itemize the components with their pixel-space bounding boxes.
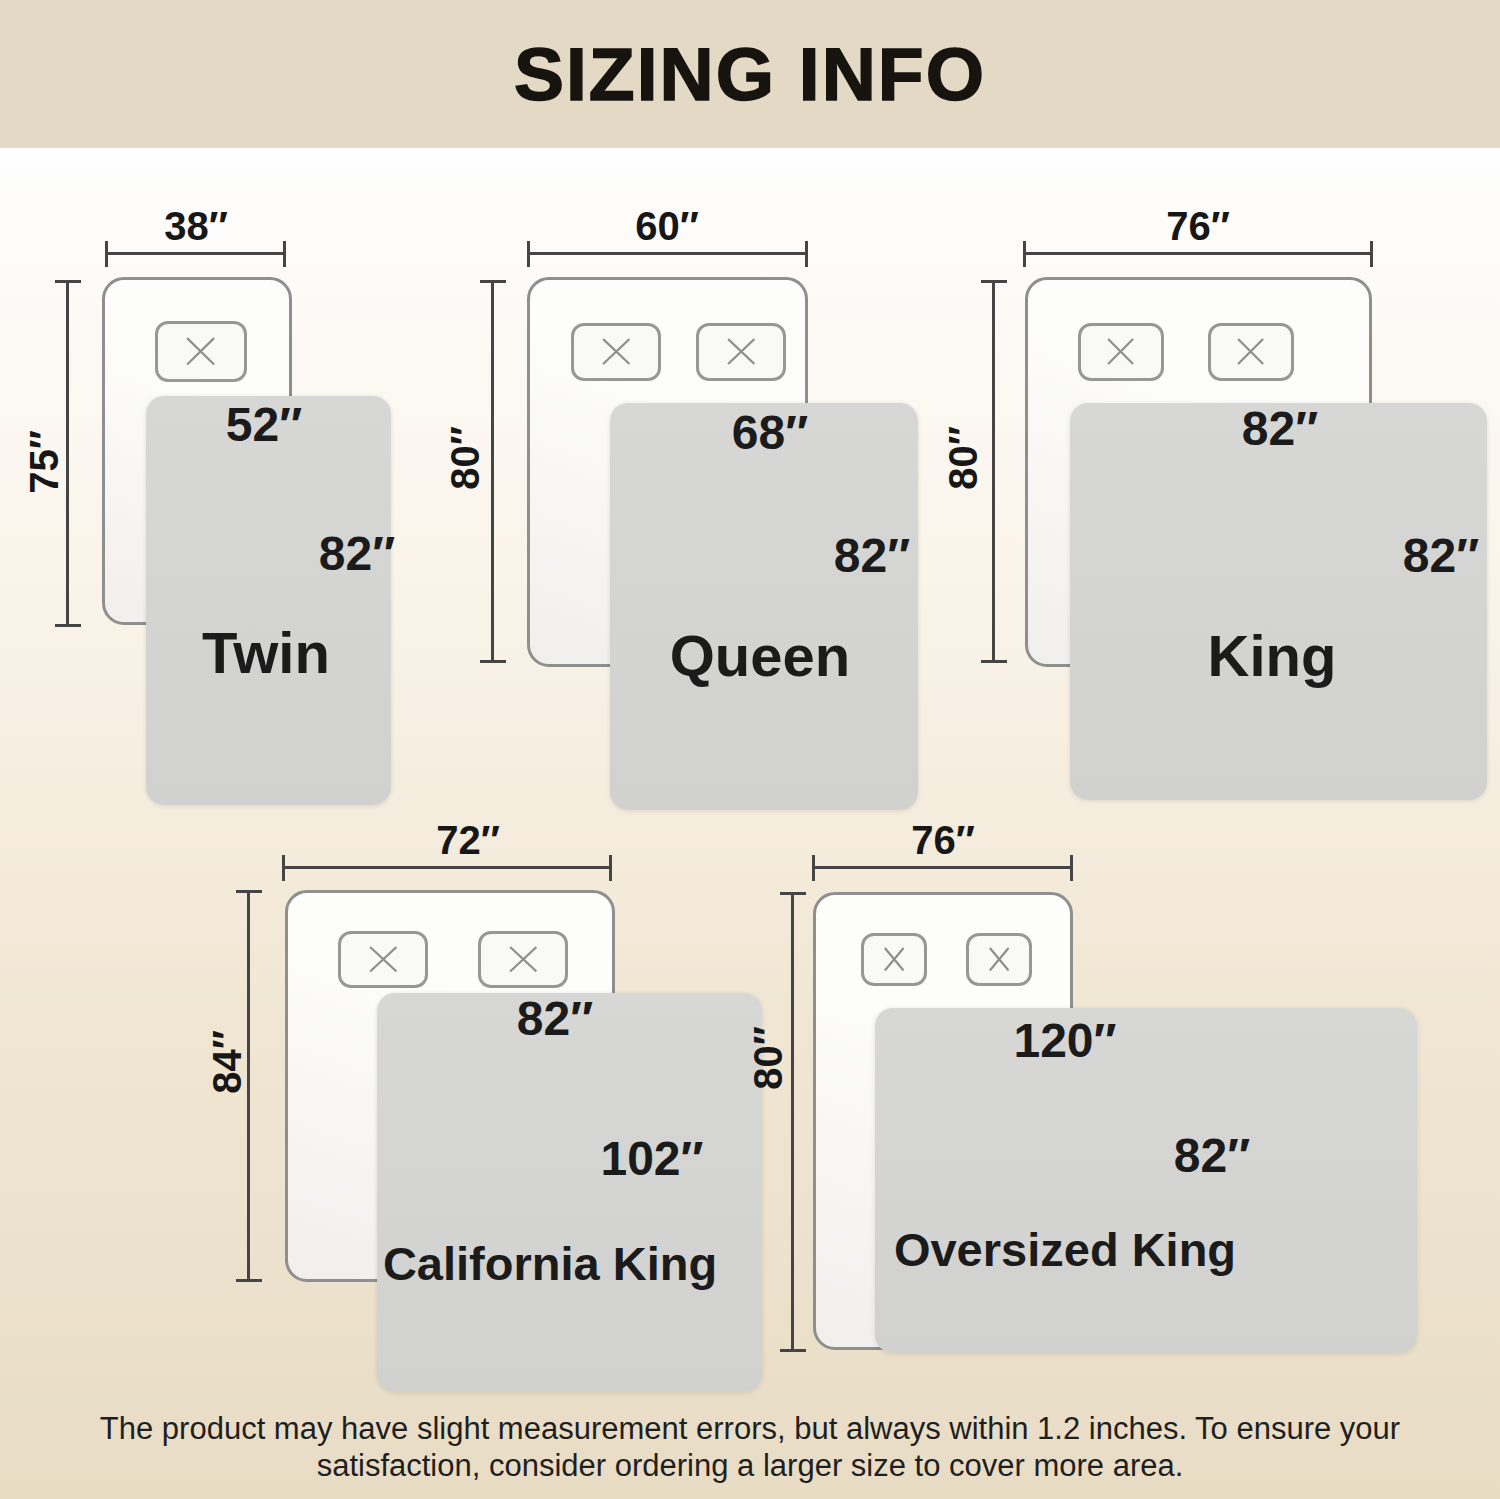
blanket-length-label: 102″ — [600, 1131, 703, 1186]
mattress-length-label: 80″ — [746, 1026, 791, 1090]
disclaimer-line-1: The product may have slight measurement … — [0, 1410, 1500, 1447]
width-dimension-line — [105, 252, 286, 255]
mattress-width-label: 38″ — [164, 204, 228, 249]
blanket-length-label: 82″ — [834, 528, 910, 583]
blanket-width-label: 68″ — [732, 405, 808, 460]
pillow-x-icon — [1107, 338, 1134, 365]
bed-diagram-queen: 60″ 80″ 68″ 82″ Queen — [0, 0, 1500, 1499]
blanket-width-label: 82″ — [1242, 401, 1318, 456]
blanket-size-name: Twin — [202, 619, 330, 686]
blanket-width-label: 120″ — [1013, 1013, 1116, 1068]
page-title: SIZING INFO — [514, 31, 986, 117]
pillow — [478, 931, 568, 988]
bed-diagram-oversized-king: 76″ 80″ 120″ 82″ Oversized King — [0, 0, 1500, 1499]
mattress — [1025, 277, 1372, 667]
width-dimension-line — [282, 866, 612, 869]
width-dimension-line — [1023, 252, 1373, 255]
mattress-width-label: 76″ — [1166, 204, 1230, 249]
mattress-length-label: 80″ — [941, 426, 986, 490]
pillow — [338, 931, 428, 988]
mattress-width-label: 72″ — [436, 818, 500, 863]
bed-diagram-king: 76″ 80″ 82″ 82″ King — [0, 0, 1500, 1499]
pillow-x-icon — [602, 338, 631, 365]
blanket: 82″ 82″ King — [1070, 403, 1487, 800]
blanket-length-label: 82″ — [319, 526, 395, 581]
length-dimension-line — [791, 892, 794, 1352]
width-dimension-line — [812, 866, 1073, 869]
pillow — [155, 321, 247, 382]
blanket-size-name: Oversized King — [885, 1225, 1245, 1276]
footer-disclaimer: The product may have slight measurement … — [0, 1410, 1500, 1484]
mattress-length-label: 84″ — [205, 1030, 250, 1094]
pillow — [571, 323, 661, 381]
pillow — [1208, 323, 1294, 381]
blanket-size-name: King — [1208, 622, 1337, 689]
blanket: 52″ 82″ Twin — [146, 396, 391, 805]
pillow — [696, 323, 786, 381]
disclaimer-line-2: satisfaction, consider ordering a larger… — [0, 1447, 1500, 1484]
mattress-width-label: 76″ — [911, 818, 975, 863]
pillow — [1078, 323, 1164, 381]
length-dimension-line — [66, 280, 69, 627]
mattress-width-label: 60″ — [635, 204, 699, 249]
mattress-length-label: 75″ — [22, 430, 67, 494]
blanket-width-label: 82″ — [517, 991, 593, 1046]
bed-diagram-california-king: 72″ 84″ 82″ 102″ California King — [0, 0, 1500, 1499]
blanket-width-label: 52″ — [226, 397, 302, 452]
mattress — [285, 890, 615, 1282]
sizing-info-page: SIZING INFO 38″ 75″ 52″ 82″ Twin 60″ 80″ — [0, 0, 1500, 1499]
length-dimension-line — [247, 890, 250, 1282]
blanket-size-name: Queen — [670, 622, 851, 689]
header-banner: SIZING INFO — [0, 0, 1500, 148]
pillow-x-icon — [1237, 338, 1264, 365]
mattress-length-label: 80″ — [443, 426, 488, 490]
pillow-x-icon — [369, 946, 398, 973]
pillow-x-icon — [509, 946, 538, 973]
pillow-x-icon — [186, 337, 215, 366]
pillow — [861, 933, 927, 986]
width-dimension-line — [527, 252, 808, 255]
pillow-x-icon — [884, 947, 904, 971]
blanket-length-label: 82″ — [1403, 528, 1479, 583]
blanket: 120″ 82″ Oversized King — [875, 1008, 1417, 1353]
blanket: 68″ 82″ Queen — [610, 403, 918, 810]
mattress — [813, 892, 1073, 1350]
length-dimension-line — [992, 280, 995, 663]
pillow — [966, 933, 1032, 986]
bed-diagram-twin: 38″ 75″ 52″ 82″ Twin — [0, 0, 1500, 1499]
mattress — [527, 277, 808, 667]
pillow-x-icon — [727, 338, 756, 365]
length-dimension-line — [491, 280, 494, 663]
blanket-length-label: 82″ — [1174, 1128, 1250, 1183]
mattress — [102, 277, 292, 625]
blanket-size-name: California King — [370, 1239, 730, 1290]
blanket: 82″ 102″ California King — [377, 993, 762, 1392]
pillow-x-icon — [989, 947, 1009, 971]
